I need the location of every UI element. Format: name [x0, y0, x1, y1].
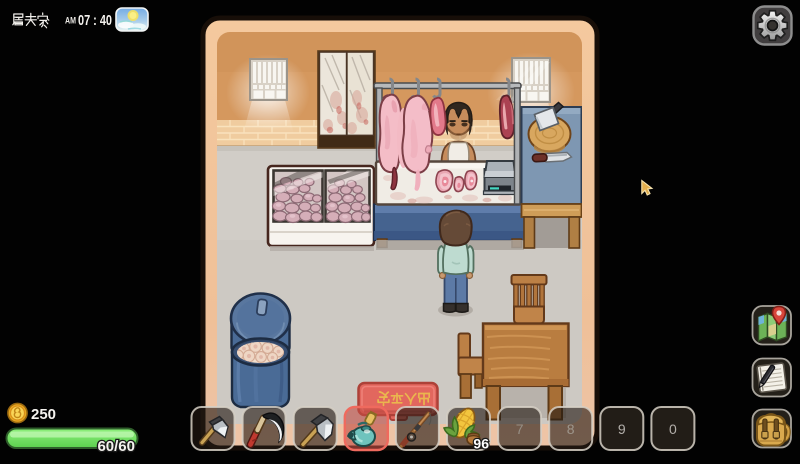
svg-text:60/60: 60/60: [97, 438, 135, 455]
svg-text:0: 0: [669, 421, 677, 437]
svg-text:07 : 40: 07 : 40: [78, 12, 112, 29]
svg-text:AM: AM: [65, 16, 76, 26]
svg-text:8: 8: [567, 421, 575, 437]
svg-text:7: 7: [516, 421, 524, 437]
svg-text:9: 9: [618, 421, 626, 437]
svg-text:250: 250: [31, 406, 56, 423]
svg-text:96: 96: [473, 436, 489, 452]
